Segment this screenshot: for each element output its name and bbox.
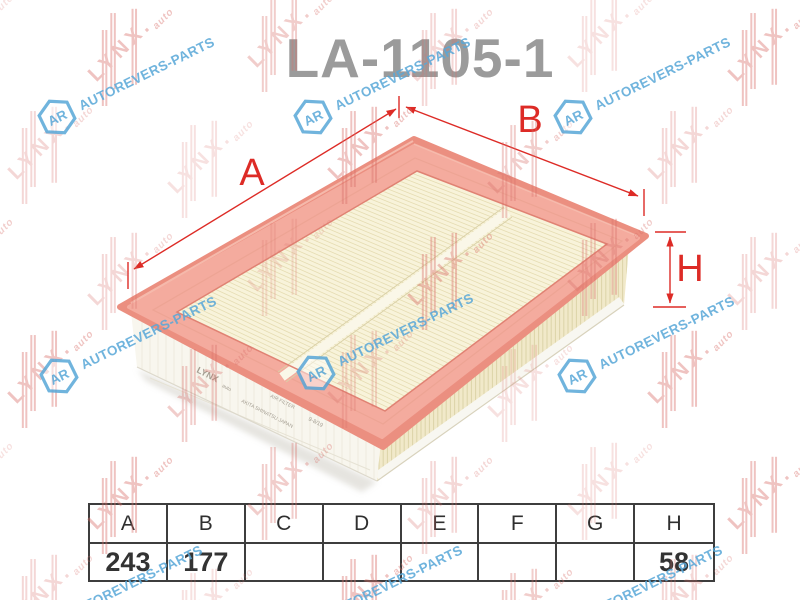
table-header-cell: C — [246, 505, 324, 544]
dimension-a-label: A — [239, 152, 265, 194]
table-header-cell: G — [557, 505, 635, 544]
table-value-cell — [324, 544, 402, 580]
table-header-cell: A — [90, 505, 168, 544]
table-value-cell — [557, 544, 635, 580]
table-value-cell — [479, 544, 557, 580]
table-value-cell: 58 — [635, 544, 713, 580]
dimension-h: H — [653, 232, 704, 307]
table-value-cell — [402, 544, 480, 580]
table-value-cell: 243 — [90, 544, 168, 580]
part-number-title: LA-1105-1 — [40, 26, 800, 90]
table-header-cell: E — [402, 505, 480, 544]
table-value-cell — [246, 544, 324, 580]
table-value-cell: 177 — [168, 544, 246, 580]
product-card: LYNX auto LA-1105-1 AIR FILTER AKITA SHI… — [0, 0, 800, 600]
spec-table: ABCDEFGH24317758 — [88, 503, 715, 582]
table-header-cell: D — [324, 505, 402, 544]
table-header-cell: B — [168, 505, 246, 544]
table-header-cell: H — [635, 505, 713, 544]
dimension-h-label: H — [676, 248, 703, 290]
table-header-cell: F — [479, 505, 557, 544]
dimension-b-label: B — [517, 99, 542, 141]
